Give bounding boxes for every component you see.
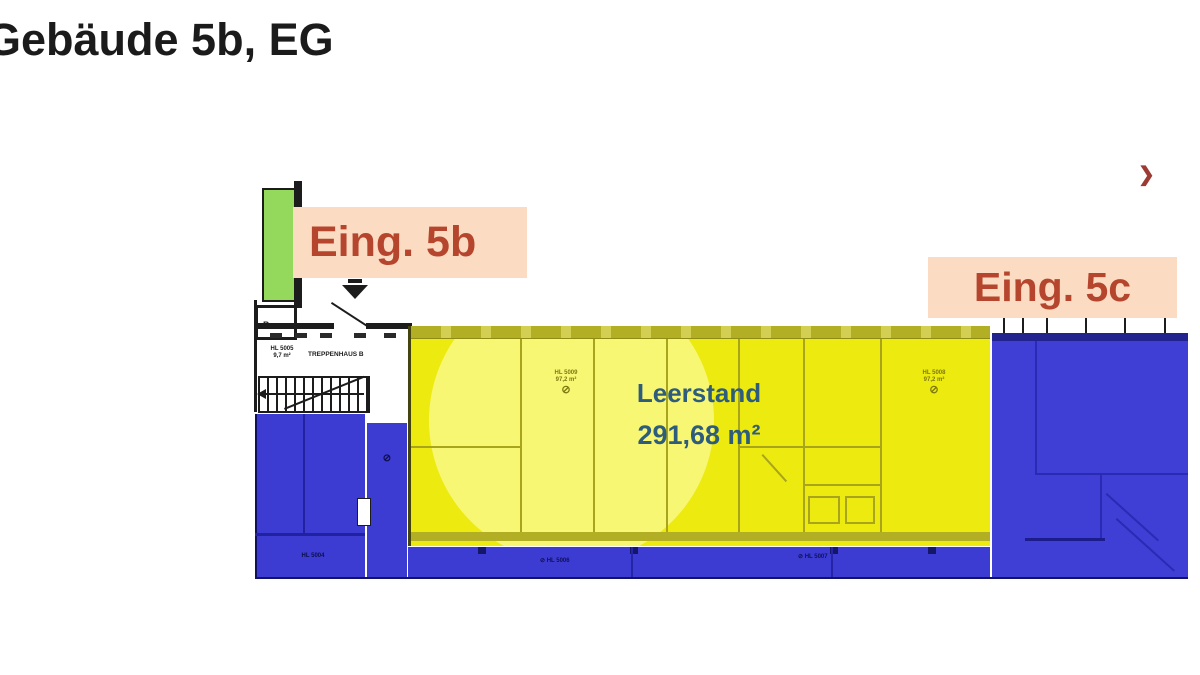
occupied-area-right — [992, 333, 1188, 578]
small-room-outline — [845, 496, 875, 524]
room-tag: HL 5005 9,7 m² — [260, 346, 304, 360]
window-tick — [354, 333, 366, 338]
door-swing-line — [762, 454, 788, 482]
room-tag: ⊘ — [367, 453, 407, 464]
page-title: Gebäude 5b, EG — [0, 14, 334, 66]
no-symbol-icon: ⊘ — [383, 453, 391, 464]
vacancy-label: Leerstand — [579, 378, 819, 409]
vacancy-area-value: 291,68 m² — [569, 420, 829, 451]
column-marker — [478, 547, 486, 554]
partition-line — [631, 547, 633, 578]
room-tag: HL 5004 — [288, 553, 338, 559]
vacant-area: HL 5009 97,2 m² ⊘ HL 5008 97,2 m² ⊘ Leer… — [408, 326, 990, 546]
small-room-outline — [808, 496, 840, 524]
room-tag-line: HL 5008 — [923, 370, 946, 376]
room-tag-line: HL 5009 — [555, 370, 578, 376]
partition-line — [1100, 473, 1102, 541]
room-tag-line: 9,7 m² — [273, 353, 290, 359]
entrance-arrow-icon — [342, 285, 368, 299]
room-tag: HL 5008 97,2 m² ⊘ — [899, 370, 969, 396]
floor-plan: P HL 5005 9,7 m² TREPPENHAUS B HL 5004 ⊘ — [250, 165, 1195, 585]
stair-arrow-head-icon — [257, 389, 266, 399]
partition-line — [803, 484, 880, 486]
window-tick — [295, 333, 307, 338]
wall-band — [992, 333, 1188, 341]
plan-bottom-edge — [255, 577, 1188, 579]
partition-line — [1035, 341, 1037, 473]
window-band — [411, 326, 990, 339]
window-tick — [270, 333, 282, 338]
partition-line — [831, 547, 833, 578]
occupied-area-strip — [367, 423, 407, 579]
room-tag: ⊘ HL 5007 — [798, 553, 828, 560]
room-tag-line: 97,2 m² — [556, 377, 577, 383]
partition-line — [520, 339, 522, 532]
partition-line — [1025, 538, 1105, 541]
wall-segment — [254, 323, 412, 329]
wall-band — [411, 532, 990, 541]
partition-line — [1035, 473, 1188, 475]
partition-line — [303, 414, 305, 533]
column-marker — [928, 547, 936, 554]
room-tag: ⊘ HL 5006 — [540, 557, 570, 564]
room-tag-line: HL 5005 — [271, 346, 294, 352]
partition-line — [880, 339, 882, 532]
stairwell-label: TREPPENHAUS B — [308, 351, 364, 358]
entrance-green-zone — [262, 188, 296, 302]
entrance-arrow-stem — [348, 279, 362, 283]
entrance-5c-label: Eing. 5c — [928, 257, 1177, 318]
occupied-corridor — [408, 547, 990, 578]
partition-line — [411, 446, 520, 448]
window-tick — [384, 333, 396, 338]
partition-line — [255, 533, 365, 536]
entrance-5b-label: Eing. 5b — [293, 207, 527, 278]
room-tag-line: 97,2 m² — [924, 377, 945, 383]
door-opening — [357, 498, 371, 526]
window-tick — [320, 333, 332, 338]
no-symbol-icon: ⊘ — [561, 384, 570, 396]
no-symbol-icon: ⊘ — [929, 384, 938, 396]
